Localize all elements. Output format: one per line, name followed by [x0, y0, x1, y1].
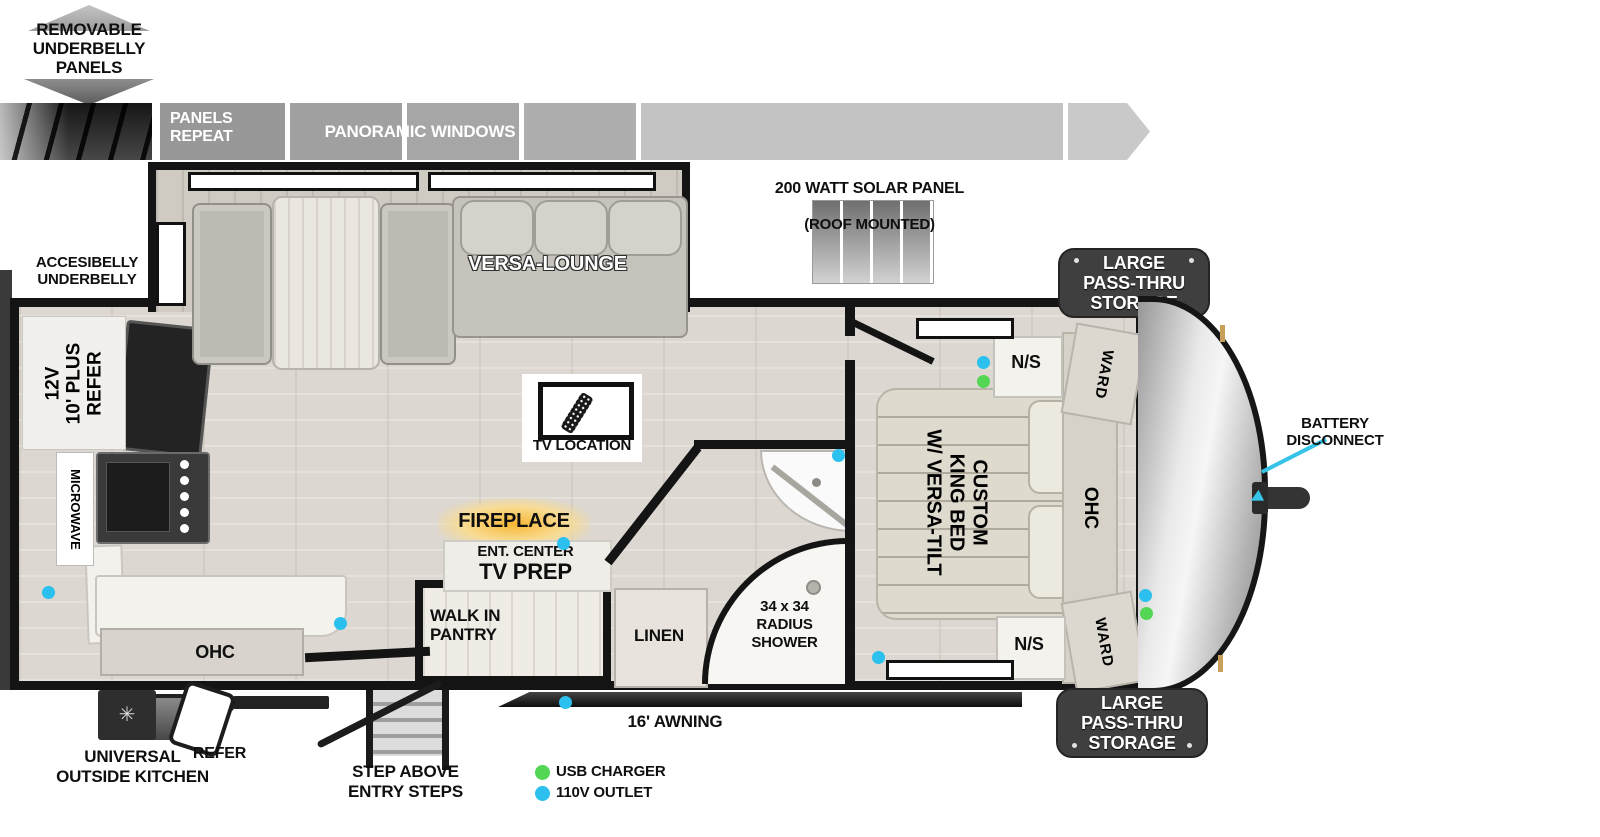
outside-refer-label: REFER	[182, 745, 257, 763]
pass-thru-storage-badge-bottom: LARGE PASS-THRU STORAGE	[1056, 688, 1208, 758]
king-bed-label: CUSTOM KING BED W/ VERSA-TILT	[922, 412, 991, 592]
legend-outlet-dot	[535, 786, 550, 801]
accessibelly-label: ACCESIBELLY UNDERBELLY	[8, 255, 166, 289]
sink-faucet	[812, 478, 821, 487]
legend-usb-label: USB CHARGER	[556, 764, 696, 781]
underbelly-down-arrow-icon	[24, 79, 154, 105]
panoramic-windows-label: PANORAMIC WINDOWS	[295, 122, 545, 141]
110v-outlet-dot	[977, 356, 990, 369]
110v-outlet-dot	[872, 651, 885, 664]
entry-steps-post	[366, 690, 373, 768]
nightstand-top-label: N/S	[993, 352, 1059, 372]
usb-charger-dot	[977, 375, 990, 388]
slide-window	[428, 172, 656, 191]
awning-bar	[498, 692, 1022, 707]
roof-arrow	[1068, 103, 1150, 160]
solar-subtitle: (ROOF MOUNTED)	[804, 216, 935, 233]
110v-outlet-dot	[559, 696, 572, 709]
roof-segment-long	[641, 103, 1063, 160]
bathroom-wall-top	[694, 440, 850, 449]
usb-charger-dot	[1140, 607, 1153, 620]
underbelly-panels-graphic	[0, 103, 152, 160]
110v-outlet-dot	[832, 449, 845, 462]
refer-label-box: 12V 10' PLUS REFER	[22, 316, 126, 450]
entry-steps-label: STEP ABOVE ENTRY STEPS	[328, 762, 483, 802]
entry-steps-post	[442, 690, 449, 770]
110v-outlet-dot	[334, 617, 347, 630]
tv-location-label: TV LOCATION	[520, 438, 644, 455]
bedroom-window-top	[916, 318, 1014, 339]
110v-outlet-dot	[42, 586, 55, 599]
tv-prep-label: TV PREP	[443, 560, 608, 585]
microwave-box: MICROWAVE	[56, 452, 94, 566]
floorplan-diagram: REMOVABLE UNDERBELLY PANELS PANELS REPEA…	[0, 0, 1600, 837]
110v-outlet-dot	[557, 537, 570, 550]
110v-outlet-dot	[1139, 589, 1152, 602]
wardrobe-top-label: WARD	[1091, 348, 1116, 400]
removable-underbelly-label: REMOVABLE UNDERBELLY PANELS	[10, 20, 168, 77]
tongue-jack-handle	[1266, 487, 1310, 509]
stove-burner	[180, 460, 189, 469]
cap-latch	[1218, 655, 1223, 672]
legend-outlet-label: 110V OUTLET	[556, 785, 696, 802]
vent-fan-icon: ✳	[119, 705, 136, 725]
versa-lounge-label: VERSA-LOUNGE	[440, 253, 655, 276]
king-bed-label-wrap: CUSTOM KING BED W/ VERSA-TILT	[866, 398, 1046, 606]
bedroom-window-bottom	[886, 660, 1014, 680]
range-stove	[96, 452, 210, 544]
microwave-label: MICROWAVE	[68, 469, 83, 550]
wardrobe-bottom-label: WARD	[1091, 616, 1116, 668]
stove-burner	[180, 492, 189, 501]
walk-in-pantry-label: WALK IN PANTRY	[430, 606, 550, 644]
shower-label: 34 x 34 RADIUS SHOWER	[722, 598, 847, 652]
pass-thru-storage-bottom-label: LARGE PASS-THRU STORAGE	[1081, 693, 1183, 753]
solar-title: 200 WATT SOLAR PANEL	[775, 180, 964, 197]
outside-kitchen-vent-box: ✳	[98, 690, 156, 740]
dinette-bench	[380, 203, 456, 365]
griddle-tray	[233, 696, 329, 709]
linen-label: LINEN	[610, 626, 708, 645]
nightstand-bottom-label: N/S	[996, 634, 1062, 654]
slide-window	[188, 172, 419, 191]
fireplace-label: FIREPLACE	[440, 510, 588, 533]
bedroom-ohc-label: OHC	[1079, 487, 1101, 529]
solar-panel-label: 200 WATT SOLAR PANEL (ROOF MOUNTED)	[742, 162, 997, 234]
stove-burner	[180, 476, 189, 485]
panels-repeat-label: PANELS REPEAT	[170, 110, 280, 146]
sofa-cushion	[460, 200, 534, 256]
kitchen-ohc-label: OHC	[170, 642, 260, 662]
awning-label: 16' AWNING	[590, 712, 760, 731]
sofa-cushion	[608, 200, 682, 256]
sofa-cushion	[534, 200, 608, 256]
battery-disconnect-label: BATTERY DISCONNECT	[1262, 416, 1408, 450]
dinette-table	[272, 196, 380, 370]
shower-drain	[806, 580, 821, 595]
legend-usb-dot	[535, 765, 550, 780]
refer-label: 12V 10' PLUS REFER	[43, 332, 106, 434]
dinette-bench	[192, 203, 272, 365]
stove-burner	[180, 524, 189, 533]
stove-burner	[180, 508, 189, 517]
cap-latch	[1220, 325, 1225, 342]
